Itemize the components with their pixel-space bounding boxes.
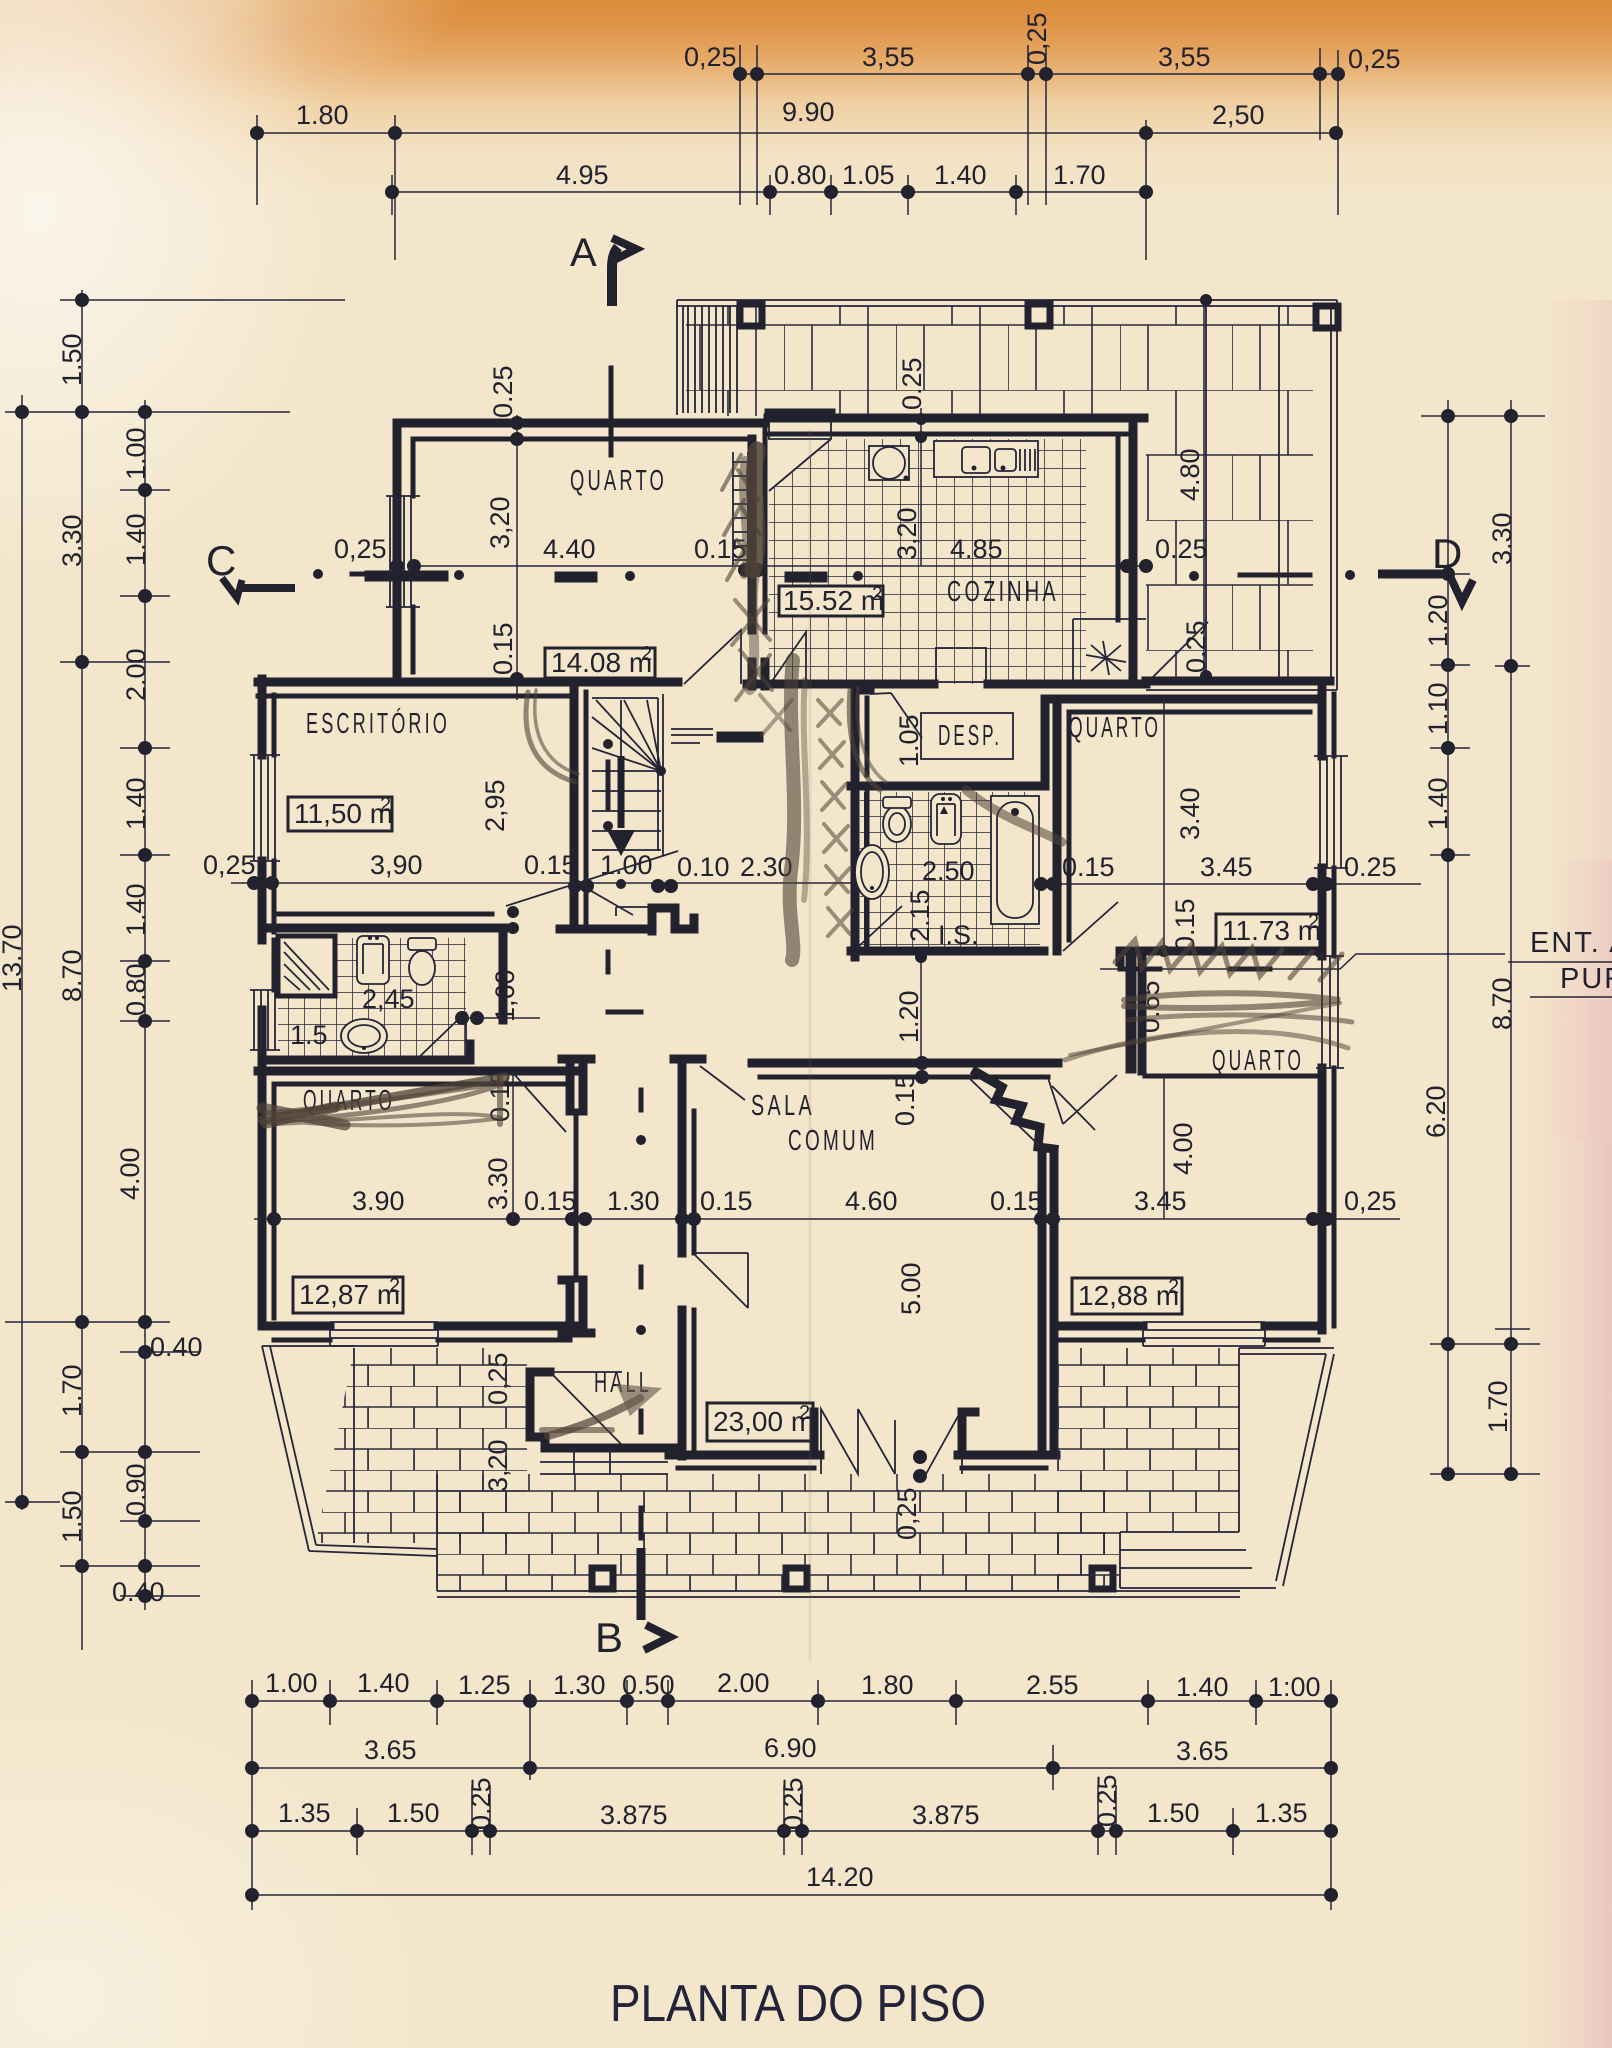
svg-text:0.90: 0.90 bbox=[121, 1463, 151, 1516]
svg-text:4.00: 4.00 bbox=[115, 1147, 145, 1200]
svg-text:12,88 m: 12,88 m bbox=[1078, 1280, 1179, 1311]
svg-text:1.00: 1.00 bbox=[121, 427, 151, 480]
svg-text:3,90: 3,90 bbox=[370, 850, 423, 880]
svg-text:1.05: 1.05 bbox=[894, 714, 924, 767]
svg-text:3.875: 3.875 bbox=[912, 1800, 980, 1830]
svg-text:6.20: 6.20 bbox=[1421, 1085, 1451, 1138]
svg-text:1.40: 1.40 bbox=[1176, 1672, 1229, 1702]
svg-text:1.50: 1.50 bbox=[1147, 1798, 1200, 1828]
svg-text:QUARTO: QUARTO bbox=[1069, 712, 1161, 744]
svg-text:0.80: 0.80 bbox=[121, 963, 151, 1016]
svg-text:1:00: 1:00 bbox=[1268, 1672, 1321, 1702]
svg-text:0.15: 0.15 bbox=[524, 850, 577, 880]
svg-text:2: 2 bbox=[389, 1275, 400, 1297]
svg-text:0.15: 0.15 bbox=[700, 1186, 753, 1216]
svg-text:QUARTO: QUARTO bbox=[570, 465, 667, 497]
svg-text:PURO: PURO bbox=[1560, 963, 1612, 995]
svg-text:1.50: 1.50 bbox=[57, 333, 87, 386]
svg-text:4.95: 4.95 bbox=[556, 160, 609, 190]
svg-text:1.40: 1.40 bbox=[121, 883, 151, 936]
svg-text:3.30: 3.30 bbox=[483, 1157, 513, 1210]
svg-text:14.08 m: 14.08 m bbox=[551, 647, 652, 678]
svg-text:1.70: 1.70 bbox=[1053, 160, 1106, 190]
svg-text:3.30: 3.30 bbox=[1487, 512, 1517, 565]
svg-text:ENT. A: ENT. A bbox=[1530, 927, 1612, 959]
svg-text:1.40: 1.40 bbox=[1423, 777, 1453, 830]
svg-text:2: 2 bbox=[1308, 911, 1319, 933]
svg-text:3,55: 3,55 bbox=[862, 42, 915, 72]
svg-text:2: 2 bbox=[799, 1402, 810, 1424]
svg-text:3.65: 3.65 bbox=[1176, 1736, 1229, 1766]
svg-text:1.05: 1.05 bbox=[842, 160, 895, 190]
svg-text:1.40: 1.40 bbox=[121, 777, 151, 830]
svg-text:1.50: 1.50 bbox=[387, 1798, 440, 1828]
svg-text:11.73 m: 11.73 m bbox=[1222, 915, 1321, 946]
svg-text:1.50: 1.50 bbox=[57, 1490, 87, 1543]
svg-text:1.5: 1.5 bbox=[290, 1020, 328, 1050]
svg-text:1.00: 1.00 bbox=[600, 850, 653, 880]
svg-text:3.875: 3.875 bbox=[600, 1800, 668, 1830]
svg-text:0.25: 0.25 bbox=[1155, 534, 1208, 564]
svg-text:1.25: 1.25 bbox=[458, 1670, 511, 1700]
svg-text:0.15: 0.15 bbox=[1170, 898, 1200, 951]
svg-text:0.15: 0.15 bbox=[488, 622, 518, 675]
svg-text:4.80: 4.80 bbox=[1175, 448, 1205, 501]
svg-text:2: 2 bbox=[872, 584, 883, 605]
svg-text:0.25: 0.25 bbox=[778, 1777, 808, 1830]
svg-text:COMUM: COMUM bbox=[788, 1125, 878, 1157]
svg-text:11,50 m: 11,50 m bbox=[294, 798, 393, 829]
svg-text:0.25: 0.25 bbox=[1092, 1774, 1122, 1827]
svg-text:2.00: 2.00 bbox=[121, 648, 151, 701]
svg-text:1,60: 1,60 bbox=[490, 969, 520, 1022]
svg-text:4.40: 4.40 bbox=[543, 534, 596, 564]
svg-text:5.00: 5.00 bbox=[896, 1262, 926, 1315]
svg-text:1.70: 1.70 bbox=[57, 1364, 87, 1417]
svg-text:0,25: 0,25 bbox=[334, 534, 387, 564]
svg-text:2: 2 bbox=[380, 794, 391, 816]
svg-text:1.30: 1.30 bbox=[553, 1670, 606, 1700]
svg-text:2.00: 2.00 bbox=[717, 1668, 770, 1698]
svg-text:0,25: 0,25 bbox=[1344, 1186, 1397, 1216]
svg-text:0.50: 0.50 bbox=[622, 1670, 675, 1700]
svg-text:1.30: 1.30 bbox=[607, 1186, 660, 1216]
svg-text:0.25: 0.25 bbox=[1344, 852, 1397, 882]
svg-text:0,25: 0,25 bbox=[203, 850, 256, 880]
svg-text:0,25: 0,25 bbox=[1348, 44, 1401, 74]
svg-text:DESP.: DESP. bbox=[938, 720, 1002, 752]
svg-text:1.40: 1.40 bbox=[934, 160, 987, 190]
svg-text:3.45: 3.45 bbox=[1200, 852, 1253, 882]
svg-text:QUARTO: QUARTO bbox=[1212, 1045, 1304, 1077]
svg-text:3.45: 3.45 bbox=[1134, 1186, 1187, 1216]
svg-text:0.25: 0.25 bbox=[897, 357, 927, 410]
svg-text:I.S.: I.S. bbox=[938, 920, 979, 950]
svg-text:ESCRITÓRIO: ESCRITÓRIO bbox=[306, 707, 450, 740]
svg-text:C: C bbox=[206, 537, 236, 584]
svg-text:0.15: 0.15 bbox=[890, 1073, 920, 1126]
svg-text:4.60: 4.60 bbox=[845, 1186, 898, 1216]
svg-text:0.25: 0.25 bbox=[1181, 620, 1211, 673]
svg-text:13.70: 13.70 bbox=[0, 924, 27, 992]
svg-text:1.20: 1.20 bbox=[894, 990, 924, 1043]
svg-text:6.90: 6.90 bbox=[764, 1733, 817, 1763]
svg-text:0,25: 0,25 bbox=[1022, 12, 1052, 65]
svg-text:1.40: 1.40 bbox=[121, 513, 151, 566]
svg-text:3,55: 3,55 bbox=[1158, 42, 1211, 72]
svg-text:1.20: 1.20 bbox=[1423, 594, 1453, 647]
svg-text:3,20: 3,20 bbox=[485, 496, 515, 549]
svg-text:1.00: 1.00 bbox=[265, 1668, 318, 1698]
svg-text:0.15: 0.15 bbox=[524, 1186, 577, 1216]
svg-text:A: A bbox=[570, 231, 597, 275]
svg-text:1.40: 1.40 bbox=[357, 1668, 410, 1698]
svg-text:9.90: 9.90 bbox=[782, 97, 835, 127]
svg-text:COZINHA: COZINHA bbox=[947, 576, 1059, 608]
svg-text:2: 2 bbox=[641, 643, 652, 665]
svg-text:B: B bbox=[595, 1614, 623, 1661]
svg-text:1.70: 1.70 bbox=[1483, 1380, 1513, 1433]
svg-text:PLANTA DO PISO: PLANTA DO PISO bbox=[610, 1975, 986, 2033]
svg-text:3.30: 3.30 bbox=[57, 514, 87, 567]
svg-text:1.35: 1.35 bbox=[278, 1798, 331, 1828]
svg-text:0.10: 0.10 bbox=[677, 852, 730, 882]
svg-text:4.00: 4.00 bbox=[1168, 1122, 1198, 1175]
svg-text:8.70: 8.70 bbox=[1487, 977, 1517, 1030]
svg-text:2: 2 bbox=[1168, 1276, 1179, 1298]
svg-text:14.20: 14.20 bbox=[806, 1862, 874, 1892]
svg-text:3.90: 3.90 bbox=[352, 1186, 405, 1216]
svg-text:2.55: 2.55 bbox=[1026, 1670, 1079, 1700]
svg-text:0.25: 0.25 bbox=[488, 365, 518, 418]
svg-text:3,20: 3,20 bbox=[892, 507, 922, 560]
svg-text:1.80: 1.80 bbox=[861, 1670, 914, 1700]
svg-text:3.40: 3.40 bbox=[1175, 787, 1205, 840]
svg-text:SALA: SALA bbox=[751, 1090, 815, 1122]
svg-text:12,87 m: 12,87 m bbox=[299, 1279, 400, 1310]
svg-text:1.10: 1.10 bbox=[1423, 682, 1453, 735]
svg-text:1.35: 1.35 bbox=[1255, 1798, 1308, 1828]
svg-text:1.80: 1.80 bbox=[296, 100, 349, 130]
svg-text:4.85: 4.85 bbox=[950, 534, 1003, 564]
svg-text:0.40: 0.40 bbox=[112, 1577, 165, 1607]
svg-text:2.50: 2.50 bbox=[922, 856, 975, 886]
svg-text:2,95: 2,95 bbox=[480, 779, 510, 832]
svg-text:0.25: 0.25 bbox=[466, 1777, 496, 1830]
svg-text:0,25: 0,25 bbox=[684, 42, 737, 72]
svg-text:8.70: 8.70 bbox=[57, 949, 87, 1002]
svg-text:2.15: 2.15 bbox=[905, 889, 935, 942]
svg-text:15.52 m: 15.52 m bbox=[783, 585, 884, 616]
svg-text:2,45: 2,45 bbox=[362, 984, 415, 1014]
svg-text:0.40: 0.40 bbox=[150, 1332, 203, 1362]
svg-text:2,50: 2,50 bbox=[1212, 100, 1265, 130]
svg-text:0.80: 0.80 bbox=[774, 160, 827, 190]
svg-text:0.15: 0.15 bbox=[990, 1186, 1043, 1216]
svg-text:3.65: 3.65 bbox=[364, 1735, 417, 1765]
